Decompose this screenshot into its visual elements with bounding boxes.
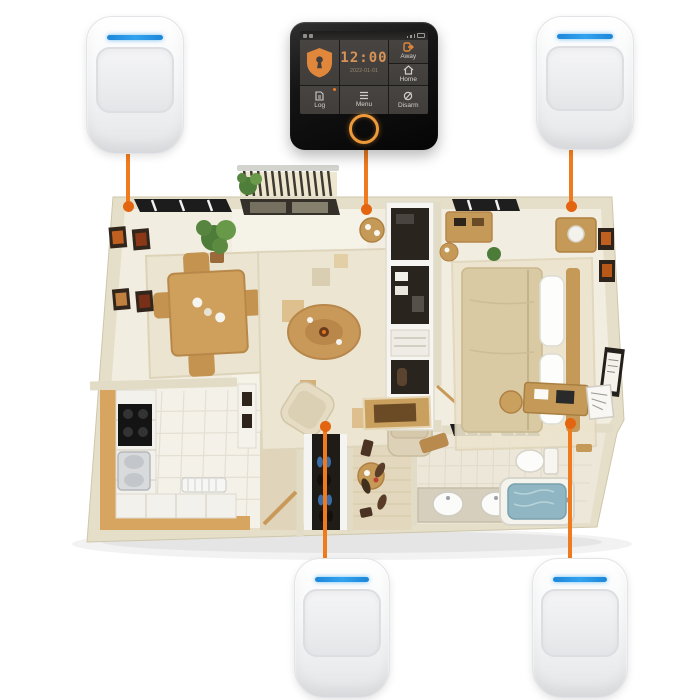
desk-chair <box>500 391 522 413</box>
side-table-top <box>360 218 384 242</box>
shield-keyhole-icon <box>306 47 333 78</box>
connector-dot-panel <box>361 204 372 215</box>
connector-line-top-left <box>126 146 130 208</box>
clock-time: 12:00 <box>340 51 387 65</box>
side-table <box>440 243 458 261</box>
notification-dot <box>333 88 336 91</box>
sensor-body <box>532 558 628 698</box>
motion-sensor-top-left <box>86 16 182 152</box>
sd-card-icon <box>309 34 313 38</box>
home-icon <box>403 65 414 75</box>
motion-sensor-bottom-right <box>532 558 626 696</box>
connector-dot-top-left <box>123 201 134 212</box>
sink <box>433 492 463 516</box>
sensor-led-indicator <box>557 34 613 39</box>
clock-date: 2022-01-01 <box>350 69 378 75</box>
sensor-led-indicator <box>107 35 163 40</box>
panel-touchscreen[interactable]: 12:00 2022-01-01 Away Home <box>300 31 428 114</box>
connector-dot-top-right <box>566 201 577 212</box>
sensor-lens <box>546 46 625 111</box>
away-arm-icon <box>403 42 414 52</box>
menu-icon <box>359 91 369 100</box>
dresser <box>446 212 492 242</box>
sensor-led-indicator <box>553 577 608 582</box>
balcony <box>237 165 339 196</box>
log-document-icon <box>315 91 324 101</box>
sim-icon <box>303 34 307 38</box>
connector-line-top-right <box>569 144 573 208</box>
armed-status-tile <box>300 40 339 85</box>
motion-sensor-bottom-center <box>294 558 388 696</box>
away-label: Away <box>400 54 416 61</box>
connector-line-bottom-right <box>568 422 572 566</box>
battery-icon <box>417 33 425 39</box>
sensor-lens <box>96 47 175 114</box>
home-arm-button[interactable]: Home <box>389 64 428 86</box>
home-label: Home <box>400 77 417 84</box>
sensor-lens <box>541 589 618 656</box>
menu-button[interactable]: Menu <box>340 86 387 114</box>
motion-sensor-top-right <box>536 16 632 148</box>
leaning-frame <box>586 385 613 419</box>
clock-tile: 12:00 2022-01-01 <box>340 40 387 85</box>
sensor-led-indicator <box>315 577 370 582</box>
sensor-body <box>86 16 184 154</box>
status-bar <box>300 31 428 40</box>
connector-line-panel <box>364 148 368 212</box>
log-button[interactable]: Log <box>300 86 339 114</box>
panel-home-button[interactable] <box>349 114 379 144</box>
desk <box>523 382 588 415</box>
sensor-lens <box>303 589 380 656</box>
bathtub <box>500 478 574 525</box>
disarm-button[interactable]: Disarm <box>389 86 428 114</box>
towel-rack <box>576 444 592 452</box>
log-label: Log <box>314 103 325 110</box>
security-system-diagram: { "panel": { "device": "touchscreen-alar… <box>0 0 700 700</box>
connector-dot-bottom-right <box>565 418 576 429</box>
disarm-icon <box>403 91 413 101</box>
alarm-control-panel: 12:00 2022-01-01 Away Home <box>290 22 438 150</box>
nightstand <box>556 218 596 252</box>
plant <box>487 247 501 261</box>
away-button[interactable]: Away <box>389 40 428 63</box>
sensor-body <box>294 558 390 698</box>
coffee-table <box>288 305 360 359</box>
signal-bars-icon <box>407 33 426 39</box>
stove <box>118 404 152 446</box>
connector-line-bottom-center <box>323 426 327 566</box>
disarm-label: Disarm <box>398 103 419 110</box>
toilet <box>516 448 558 474</box>
connector-dot-bottom-center <box>320 421 331 432</box>
sensor-body <box>536 16 634 150</box>
menu-label: Menu <box>356 102 372 109</box>
